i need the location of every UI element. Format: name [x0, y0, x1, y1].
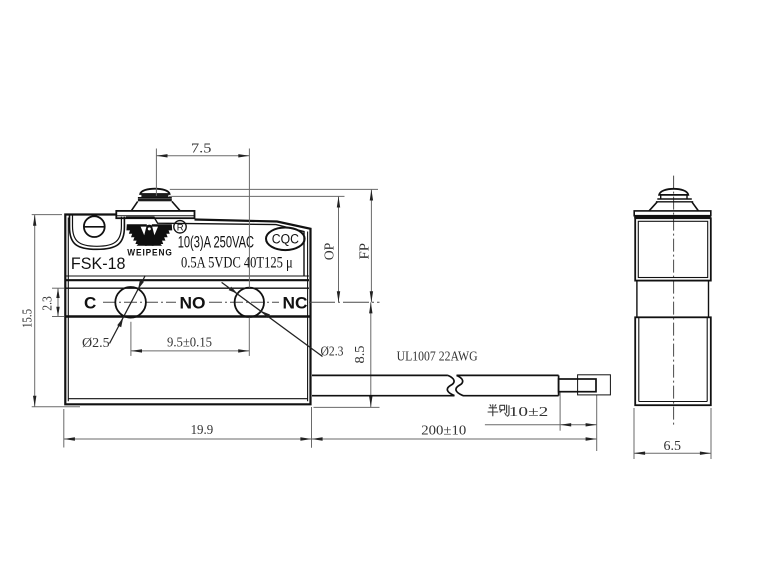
svg-text:WEIPENG: WEIPENG [127, 248, 172, 259]
svg-text:7.5: 7.5 [191, 141, 211, 156]
svg-text:6.5: 6.5 [664, 439, 682, 454]
svg-text:OP: OP [323, 243, 338, 261]
svg-text:19.9: 19.9 [191, 423, 214, 438]
svg-text:UL1007 22AWG: UL1007 22AWG [397, 350, 478, 365]
svg-text:CQC: CQC [272, 231, 299, 246]
svg-text:FSK-18: FSK-18 [71, 254, 126, 273]
svg-text:8.5: 8.5 [353, 346, 368, 364]
svg-text:FP: FP [358, 243, 373, 260]
svg-text:15.5: 15.5 [20, 309, 35, 328]
svg-text:2.3: 2.3 [41, 296, 56, 311]
svg-text:Ø2.5: Ø2.5 [82, 336, 110, 351]
svg-text:NO: NO [180, 294, 206, 313]
svg-text:200±10: 200±10 [421, 423, 466, 438]
svg-text:NC: NC [283, 294, 308, 313]
svg-text:9.5±0.15: 9.5±0.15 [167, 335, 212, 350]
svg-text:0.5A 5VDC 40T125 μ: 0.5A 5VDC 40T125 μ [181, 254, 293, 272]
svg-text:10(3)A 250VAC: 10(3)A 250VAC [178, 232, 254, 251]
svg-text:10±2: 10±2 [509, 405, 549, 420]
svg-text:C: C [84, 294, 96, 313]
svg-text:Ø2.3: Ø2.3 [321, 345, 344, 360]
